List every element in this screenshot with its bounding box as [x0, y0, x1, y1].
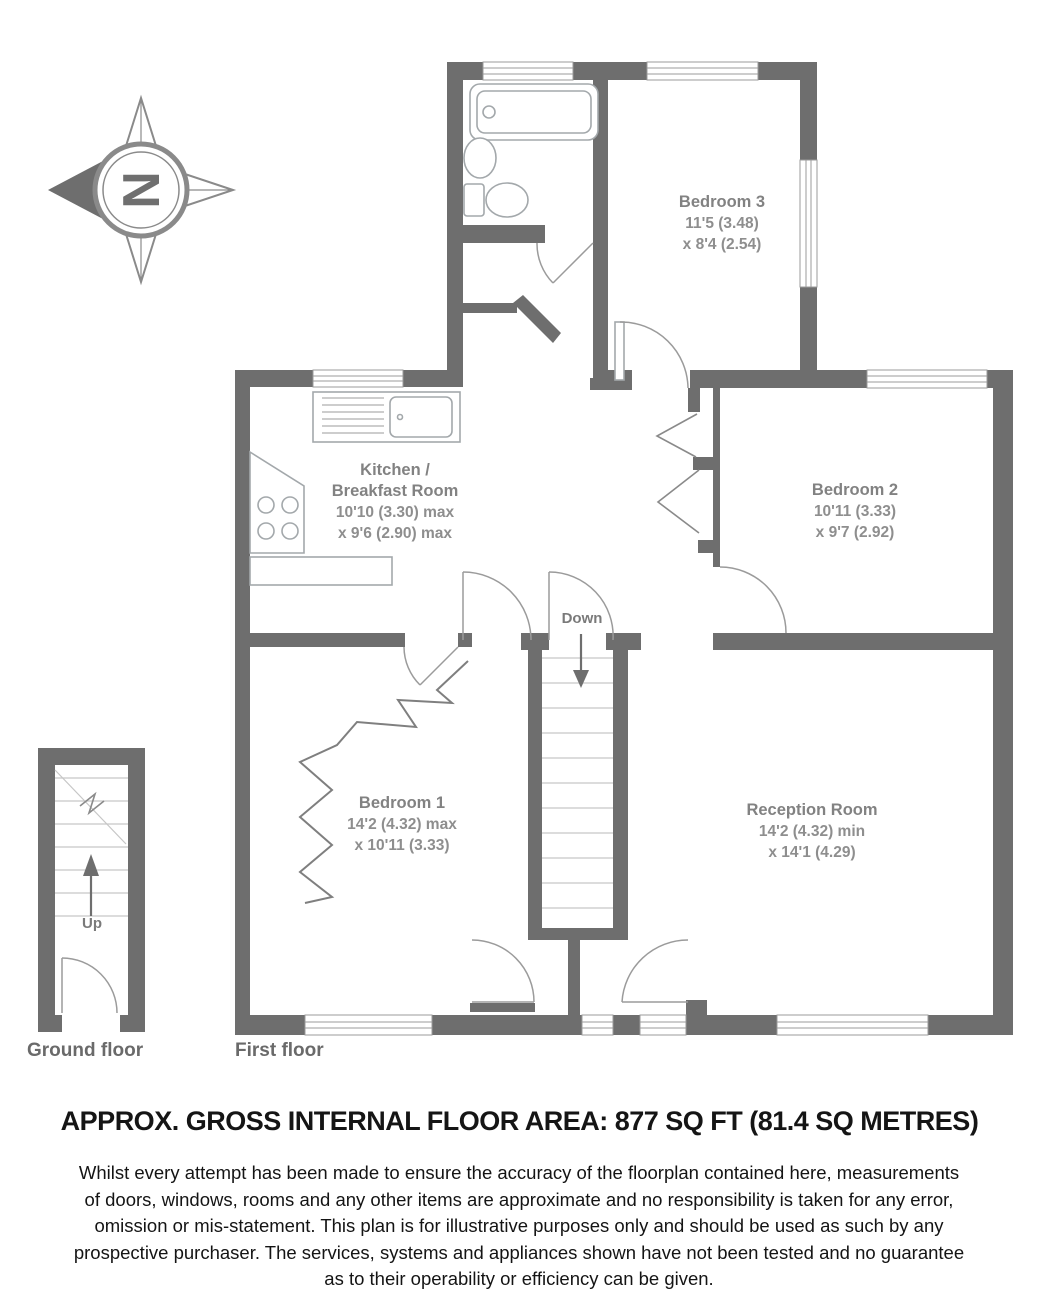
- first-floor-label: First floor: [235, 1040, 324, 1062]
- room-label-bedroom3: Bedroom 3 11'5 (3.48) x 8'4 (2.54): [679, 192, 765, 255]
- disclaimer-text: Whilst every attempt has been made to en…: [39, 1160, 999, 1293]
- floorplan-page: N: [0, 0, 1039, 1300]
- bedroom3-dim1: 11'5 (3.48): [679, 213, 765, 234]
- reception-name: Reception Room: [746, 800, 877, 821]
- kitchen-dim1: 10'10 (3.30) max: [332, 502, 459, 523]
- bedroom1-wardrobe-doors: [300, 661, 468, 903]
- sink-icon: [464, 138, 496, 178]
- first-floor-walls: [235, 62, 1013, 1035]
- toilet-icon: [464, 183, 528, 217]
- room-label-bedroom1: Bedroom 1 14'2 (4.32) max x 10'11 (3.33): [347, 793, 457, 856]
- bedroom3-name: Bedroom 3: [679, 192, 765, 213]
- gross-area-title: APPROX. GROSS INTERNAL FLOOR AREA: 877 S…: [0, 1106, 1039, 1137]
- bedroom2-name: Bedroom 2: [812, 480, 898, 501]
- down-arrow-icon: [573, 670, 589, 688]
- kitchen-dim2: x 9'6 (2.90) max: [332, 523, 459, 544]
- compass-icon: N: [48, 98, 233, 282]
- bedroom1-name: Bedroom 1: [347, 793, 457, 814]
- hob-icon: [250, 452, 304, 553]
- room-label-bedroom2: Bedroom 2 10'11 (3.33) x 9'7 (2.92): [812, 480, 898, 543]
- bedroom1-dim2: x 10'11 (3.33): [347, 835, 457, 856]
- bedroom1-dim1: 14'2 (4.32) max: [347, 814, 457, 835]
- kitchen-sink-icon: [313, 392, 460, 442]
- bedroom2-dim2: x 9'7 (2.92): [812, 522, 898, 543]
- windows: [305, 62, 987, 1035]
- ground-floor-label: Ground floor: [27, 1040, 143, 1062]
- stairs-down: [542, 634, 613, 908]
- up-arrow-icon: [83, 854, 99, 876]
- room-label-kitchen: Kitchen / Breakfast Room 10'10 (3.30) ma…: [332, 460, 459, 544]
- kitchen-name: Kitchen / Breakfast Room: [332, 460, 459, 502]
- reception-dim1: 14'2 (4.32) min: [746, 821, 877, 842]
- bedroom3-dim2: x 8'4 (2.54): [679, 234, 765, 255]
- kitchen-counter: [250, 557, 392, 585]
- stairs-down-label: Down: [562, 610, 603, 627]
- stairs-up-label: Up: [82, 915, 102, 932]
- bathtub-icon: [470, 84, 598, 140]
- hall-cupboard-doors: [657, 414, 699, 533]
- floorplan-drawing: N: [0, 0, 1039, 1300]
- ground-floor-stairs: [38, 748, 145, 1032]
- reception-dim2: x 14'1 (4.29): [746, 842, 877, 863]
- room-label-reception: Reception Room 14'2 (4.32) min x 14'1 (4…: [746, 800, 877, 863]
- compass-north-letter: N: [113, 171, 171, 209]
- bedroom2-dim1: 10'11 (3.33): [812, 501, 898, 522]
